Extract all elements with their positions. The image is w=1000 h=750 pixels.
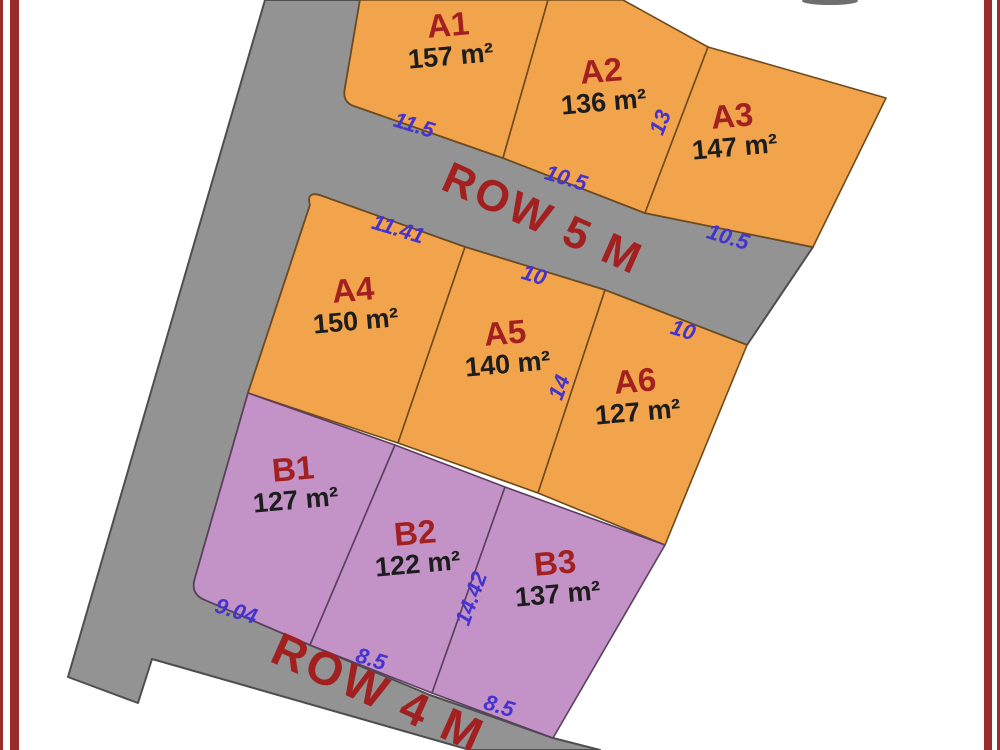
plot-B3-name: B3 xyxy=(532,542,577,583)
plot-map-svg: A1 157 m² A2 136 m² A3 147 m² A4 150 m² … xyxy=(0,0,1000,750)
left-border-thick-line xyxy=(10,0,19,750)
plot-B1-name: B1 xyxy=(270,448,315,489)
plot-A3-name: A3 xyxy=(709,95,754,136)
plot-A1-name: A1 xyxy=(425,4,470,45)
plot-A5-name: A5 xyxy=(482,312,527,353)
left-border-thin-line xyxy=(0,0,3,750)
right-border-thick-line xyxy=(984,0,992,750)
plot-map-page: A1 157 m² A2 136 m² A3 147 m² A4 150 m² … xyxy=(0,0,1000,750)
plot-A6-name: A6 xyxy=(612,360,657,401)
plot-B2-name: B2 xyxy=(392,512,437,553)
plot-A2-name: A2 xyxy=(578,50,623,91)
